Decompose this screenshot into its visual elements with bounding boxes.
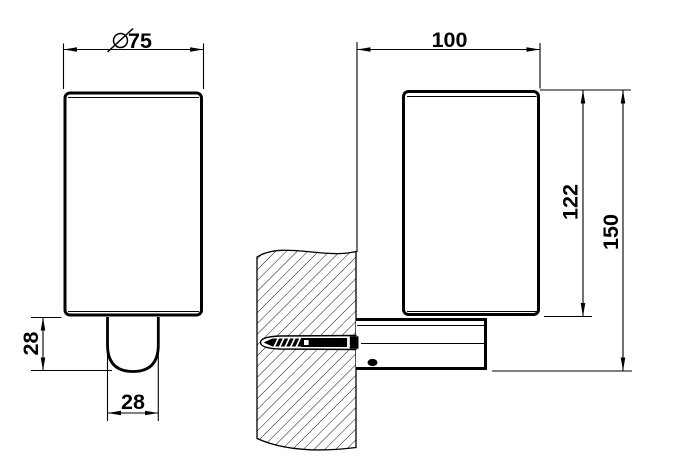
arrowhead-top (621, 90, 626, 104)
front-body-outline (65, 93, 202, 315)
wall-anchor-screw (261, 336, 359, 350)
arrowhead-bottom (621, 358, 626, 372)
dimension-holder-height-28: 28 (19, 318, 112, 371)
front-view (65, 93, 202, 372)
side-view (257, 92, 539, 450)
screw-notch (304, 340, 309, 345)
arrowhead-right (190, 47, 204, 52)
arrowhead-left (108, 411, 122, 416)
arrowhead-left (357, 47, 371, 52)
side-body (404, 92, 539, 315)
screw-head (350, 336, 359, 348)
arrowhead-left (64, 47, 78, 52)
arrowhead-bottom (41, 358, 46, 371)
holder-cup-front (108, 317, 159, 372)
dimension-drawing-canvas: 75 100 122 150 (0, 0, 679, 473)
dimension-body-height-122: 122 (540, 90, 631, 317)
screw-head-gap (347, 337, 350, 348)
arrowhead-top (581, 90, 586, 104)
arrowhead-right (527, 47, 541, 52)
dim-total-height-label: 150 (599, 214, 623, 250)
arrowhead-bottom (581, 303, 586, 317)
dimension-diameter-75: 75 (64, 29, 204, 90)
wall-section (257, 250, 356, 450)
technical-drawing-page: 75 100 122 150 (0, 0, 679, 473)
arrowhead-right (145, 411, 158, 416)
wall-bracket (356, 320, 486, 369)
arrowhead-top (41, 318, 46, 331)
dim-diameter-label: 75 (128, 29, 152, 53)
dim-body-height-label: 122 (559, 184, 583, 220)
dim-depth-label: 100 (432, 28, 468, 52)
side-body-outline (404, 92, 539, 315)
dim-holder-height-label: 28 (19, 332, 43, 356)
dim-holder-width-label: 28 (121, 390, 145, 414)
set-screw-dot (368, 359, 378, 366)
